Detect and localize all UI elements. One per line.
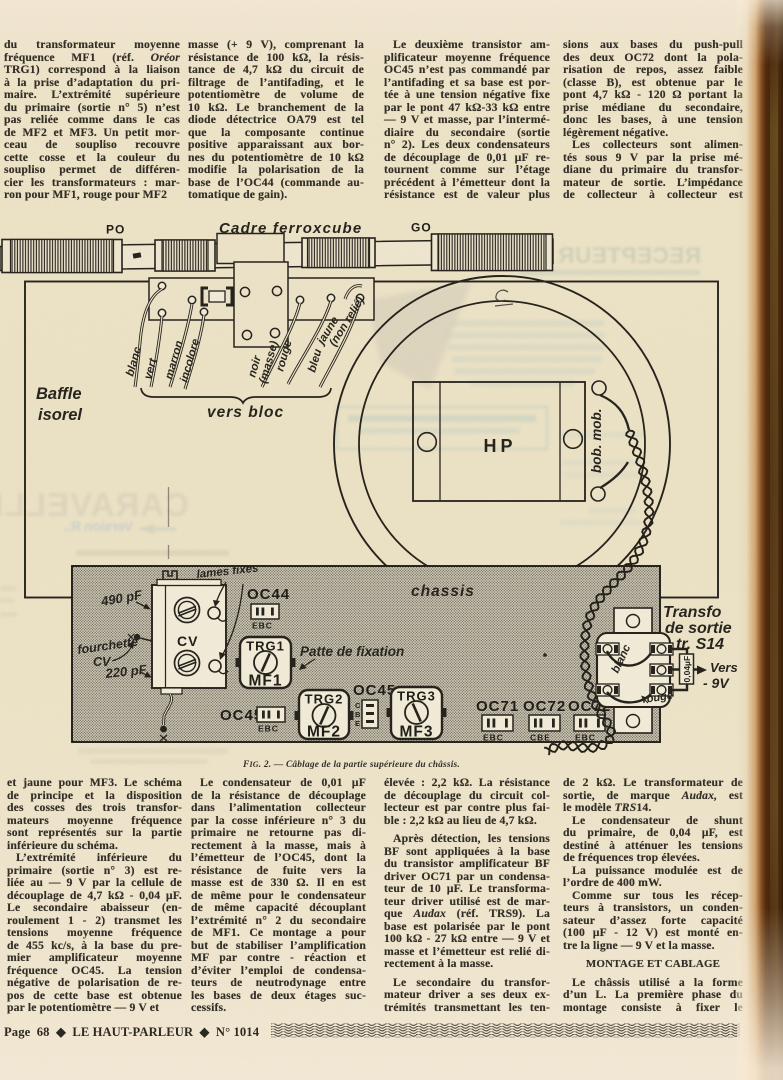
svg-text:CBE: CBE bbox=[530, 733, 551, 743]
svg-text:MF2: MF2 bbox=[307, 724, 341, 741]
svg-text:tr. S14: tr. S14 bbox=[676, 636, 724, 653]
svg-text:OC72: OC72 bbox=[523, 698, 566, 715]
svg-text:MF3: MF3 bbox=[400, 724, 434, 741]
svg-text:E: E bbox=[355, 719, 361, 728]
svg-text:Transfo: Transfo bbox=[663, 604, 722, 621]
svg-text:- 9V: - 9V bbox=[703, 675, 730, 691]
svg-text:OC44: OC44 bbox=[247, 586, 290, 603]
svg-text:blanc: blanc bbox=[124, 345, 144, 378]
svg-text:chassis: chassis bbox=[411, 583, 475, 600]
svg-text:EBC: EBC bbox=[252, 621, 273, 631]
svg-text:HP: HP bbox=[483, 436, 516, 456]
svg-text:GO: GO bbox=[411, 221, 432, 235]
svg-text:EBC: EBC bbox=[575, 733, 596, 743]
svg-text:MF1: MF1 bbox=[249, 673, 283, 690]
svg-text:EBC: EBC bbox=[258, 724, 279, 734]
svg-text:de sortie: de sortie bbox=[665, 620, 732, 637]
svg-text:Patte de fixation: Patte de fixation bbox=[300, 644, 404, 659]
svg-text:OC71: OC71 bbox=[476, 698, 519, 715]
svg-text:B: B bbox=[355, 710, 361, 719]
svg-text:bob. mob.: bob. mob. bbox=[589, 409, 604, 474]
svg-text:vers bloc: vers bloc bbox=[207, 404, 284, 421]
svg-text:bleu: bleu bbox=[306, 348, 324, 374]
svg-text:Baffle: Baffle bbox=[36, 385, 82, 403]
svg-text:PO: PO bbox=[106, 223, 125, 237]
svg-text:CV: CV bbox=[177, 633, 198, 649]
svg-text:Vers: Vers bbox=[710, 660, 738, 675]
svg-text:0,04µF: 0,04µF bbox=[682, 656, 692, 683]
svg-text:C: C bbox=[355, 701, 361, 710]
svg-text:OC45: OC45 bbox=[353, 682, 396, 699]
svg-text:CARAVELLE: CARAVELLE bbox=[0, 486, 189, 523]
svg-text:EBC: EBC bbox=[483, 733, 504, 743]
svg-text:Version R..: Version R.. bbox=[63, 519, 133, 534]
svg-text:isorel: isorel bbox=[38, 406, 82, 424]
